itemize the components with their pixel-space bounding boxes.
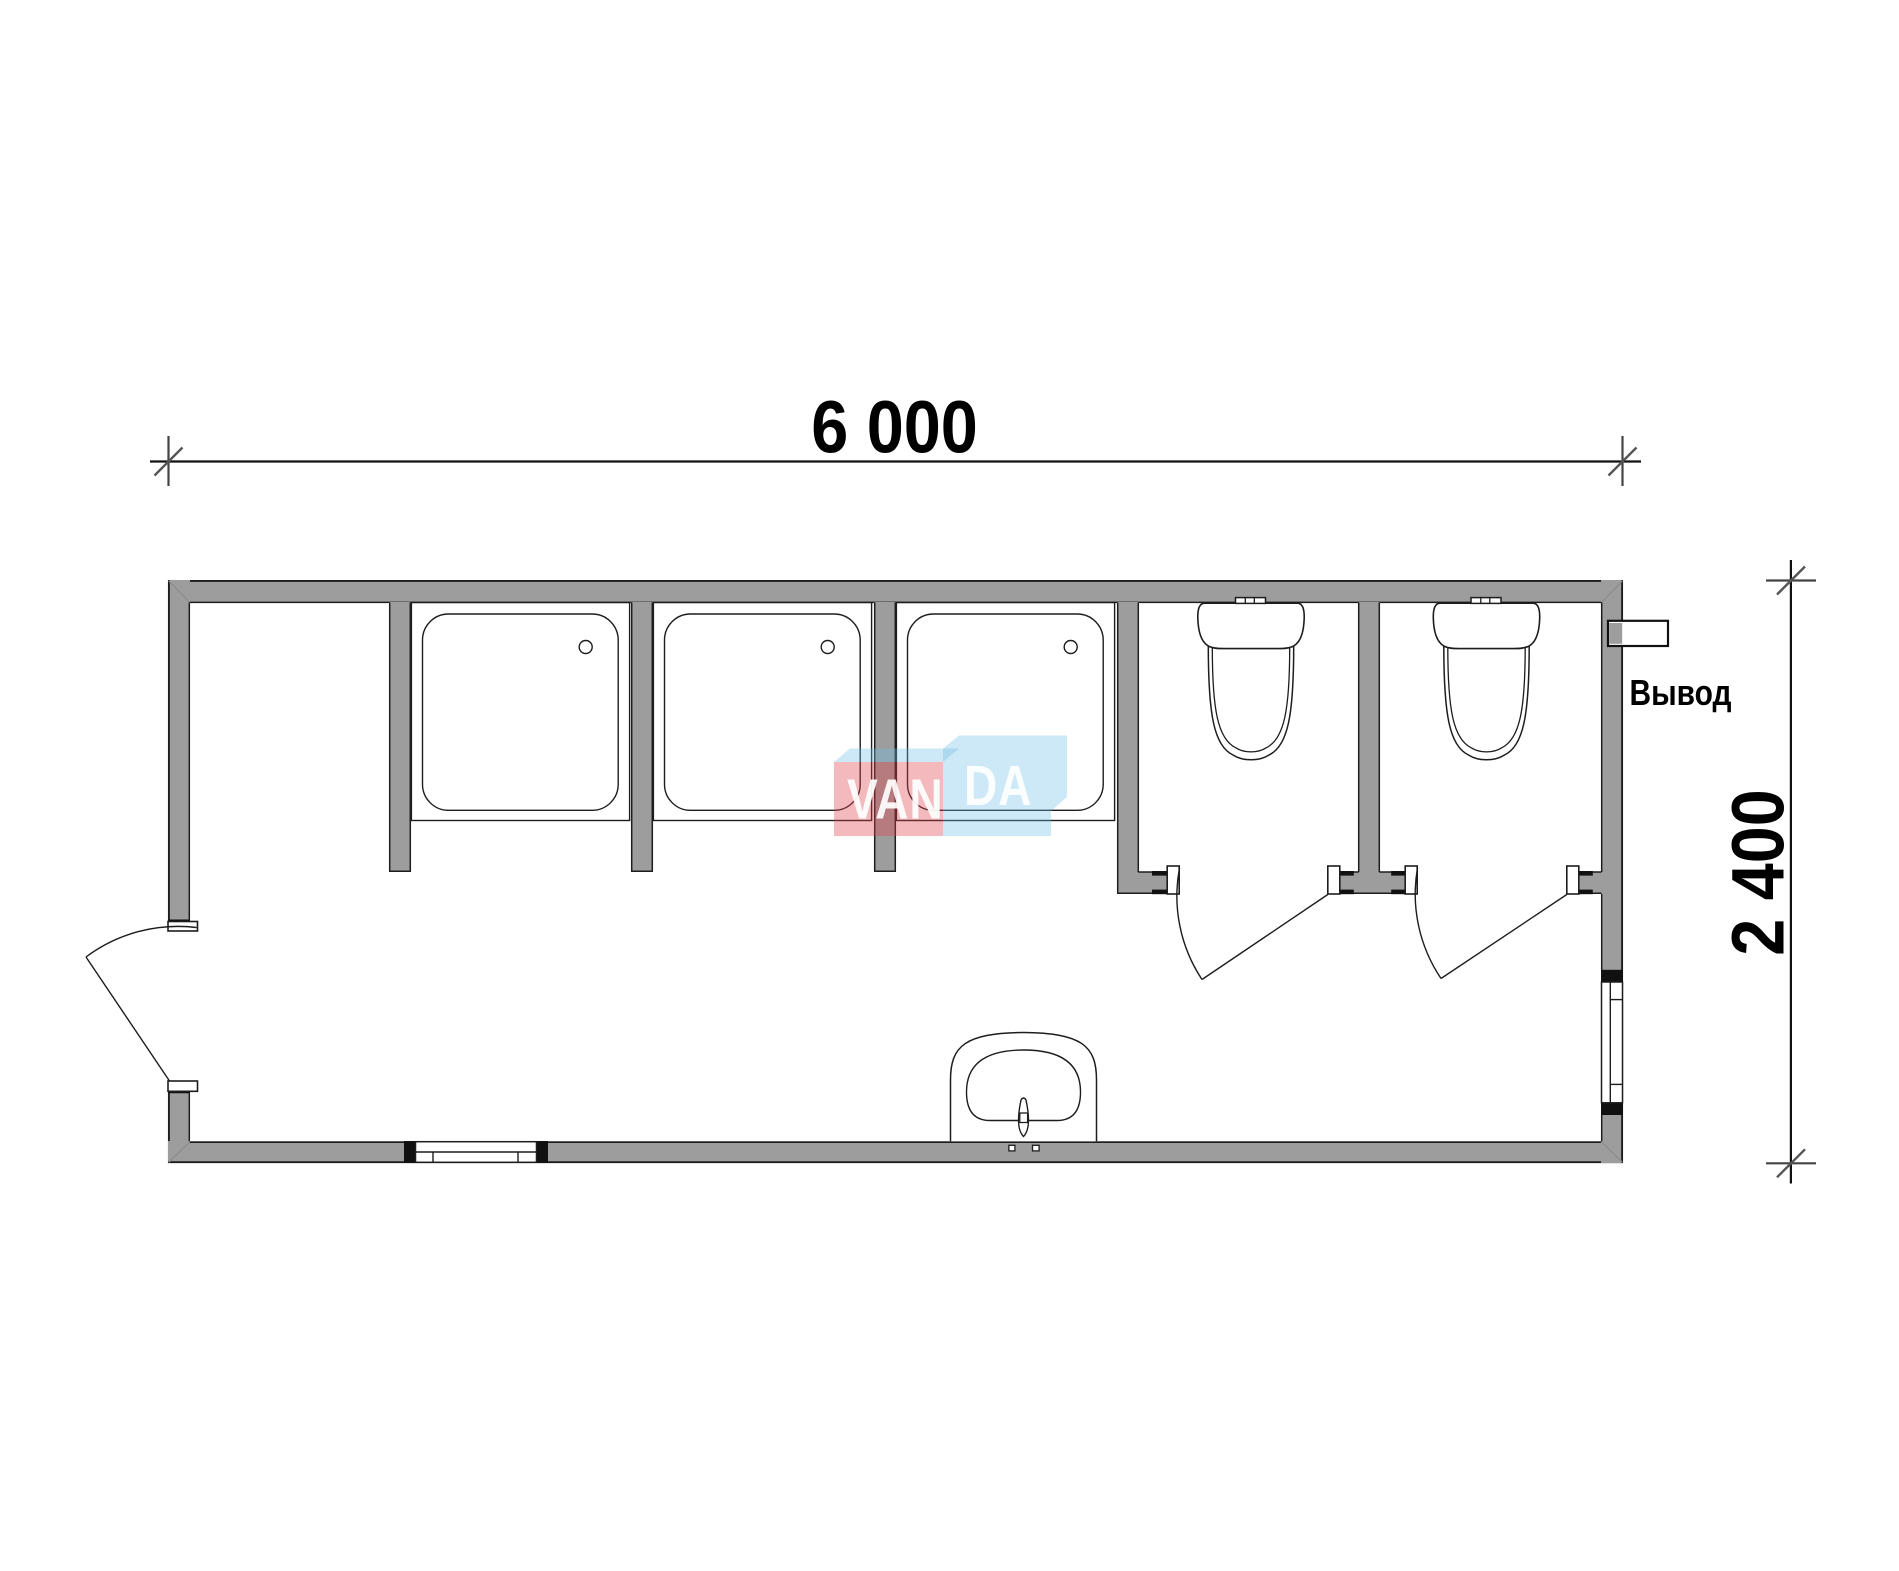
svg-text:DA: DA (964, 753, 1032, 817)
svg-text:VAN: VAN (847, 767, 943, 831)
svg-text:6 000: 6 000 (811, 385, 978, 468)
svg-text:2 400: 2 400 (1716, 789, 1799, 956)
svg-text:Вывод: Вывод (1630, 673, 1732, 713)
